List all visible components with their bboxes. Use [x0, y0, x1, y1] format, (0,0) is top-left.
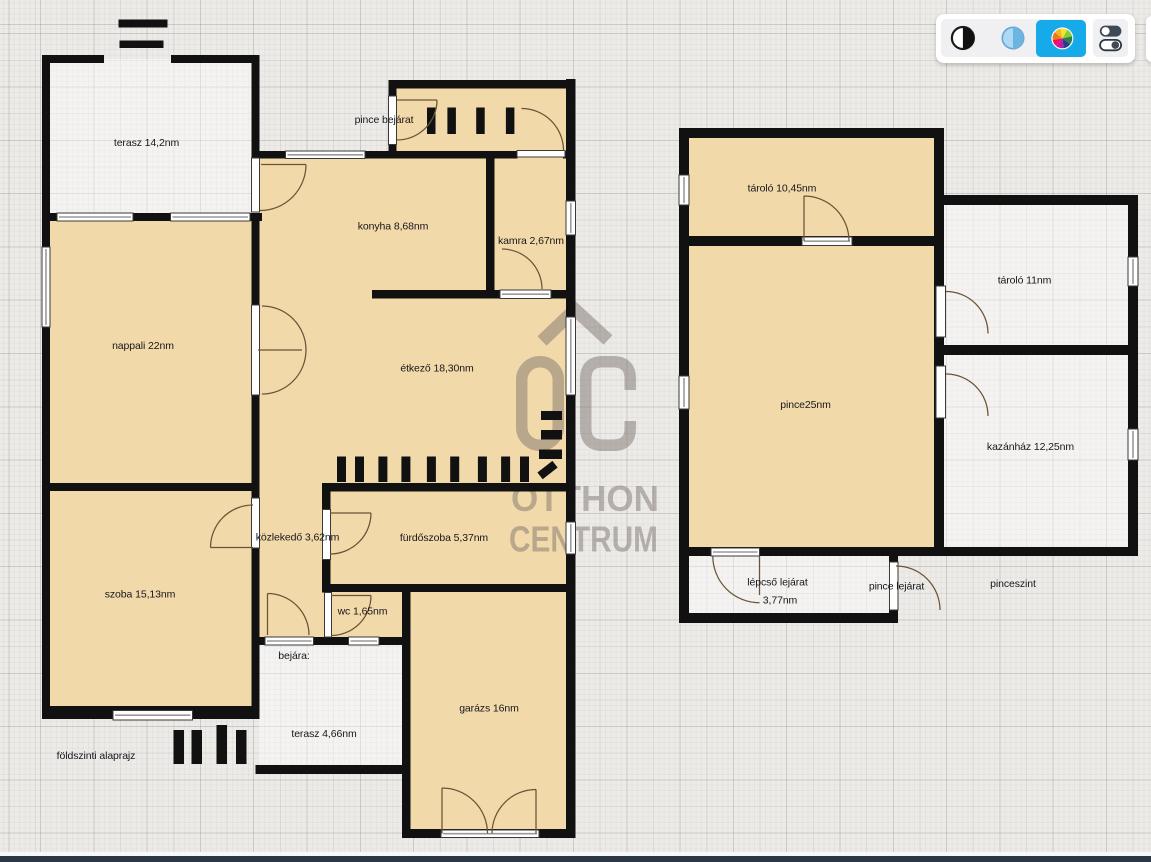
svg-text:tároló 10,45nm: tároló 10,45nm — [748, 183, 817, 195]
svg-text:nappali 22nm: nappali 22nm — [112, 340, 174, 352]
svg-text:pinceszint: pinceszint — [990, 578, 1036, 590]
svg-text:szoba 15,13nm: szoba 15,13nm — [105, 589, 176, 601]
svg-text:kamra 2,67nm: kamra 2,67nm — [498, 235, 564, 247]
svg-text:tároló 11nm: tároló 11nm — [998, 275, 1052, 287]
svg-text:pince25nm: pince25nm — [780, 399, 831, 411]
svg-text:étkező 18,30nm: étkező 18,30nm — [400, 363, 474, 375]
svg-text:fürdőszoba 5,37nm: fürdőszoba 5,37nm — [400, 532, 489, 544]
svg-text:pince lejárat: pince lejárat — [869, 581, 924, 593]
svg-text:terasz 14,2nm: terasz 14,2nm — [114, 137, 180, 149]
svg-text:földszinti alaprajz: földszinti alaprajz — [57, 750, 136, 762]
svg-text:wc 1,65nm: wc 1,65nm — [337, 606, 388, 618]
svg-text:pince bejárat: pince bejárat — [355, 114, 414, 126]
svg-text:kazánház 12,25nm: kazánház 12,25nm — [987, 441, 1074, 453]
svg-text:közlekedő 3,62nm: közlekedő 3,62nm — [256, 532, 340, 544]
svg-text:CENTRUM: CENTRUM — [509, 519, 658, 560]
svg-text:konyha 8,68nm: konyha 8,68nm — [358, 221, 429, 233]
svg-text:terasz 4,66nm: terasz 4,66nm — [291, 728, 357, 740]
svg-text:3,77nm: 3,77nm — [763, 595, 798, 607]
svg-text:lépcső lejárat: lépcső lejárat — [747, 577, 808, 589]
svg-text:bejára:: bejára: — [278, 650, 309, 662]
svg-text:garázs 16nm: garázs 16nm — [459, 703, 519, 715]
